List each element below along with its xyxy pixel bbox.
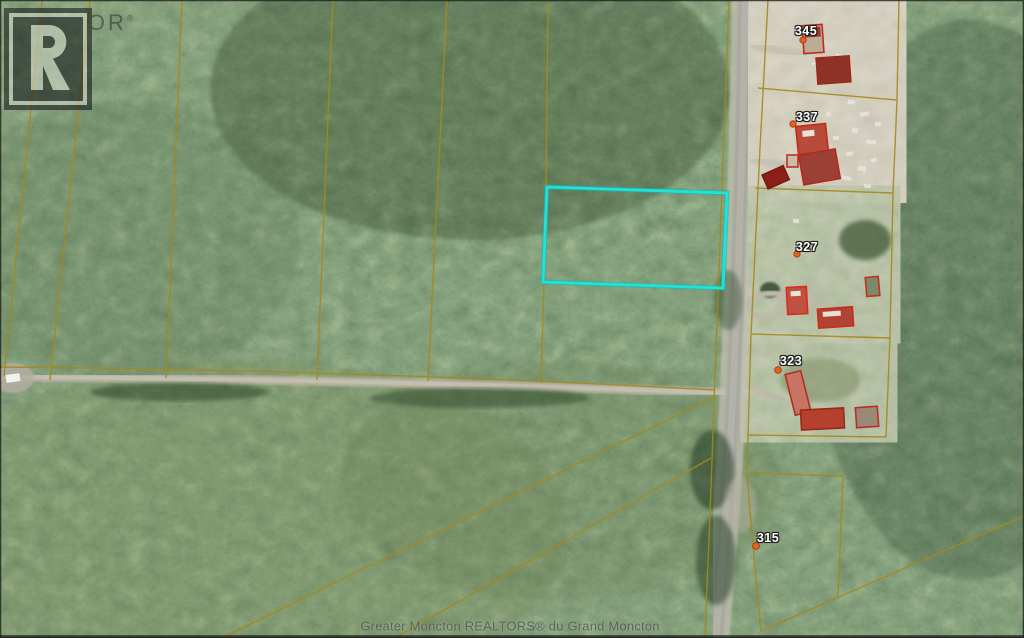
- house-number-label: 327: [796, 240, 818, 254]
- building: [796, 124, 829, 155]
- building: [799, 149, 841, 185]
- building: [855, 406, 878, 427]
- building: [816, 56, 851, 84]
- house-number-label: 337: [796, 110, 818, 124]
- house-number-label: 345: [795, 24, 817, 38]
- building: [865, 276, 880, 296]
- building: [817, 307, 853, 328]
- building: [787, 155, 798, 167]
- aerial-map: REALTOR® 345 337 327 323 315 Greater Mon…: [0, 0, 1024, 638]
- building: [801, 408, 845, 430]
- house-number-label: 323: [780, 354, 802, 368]
- map-graphics: [0, 0, 1024, 638]
- building: [786, 286, 807, 314]
- house-number-label: 315: [757, 531, 779, 545]
